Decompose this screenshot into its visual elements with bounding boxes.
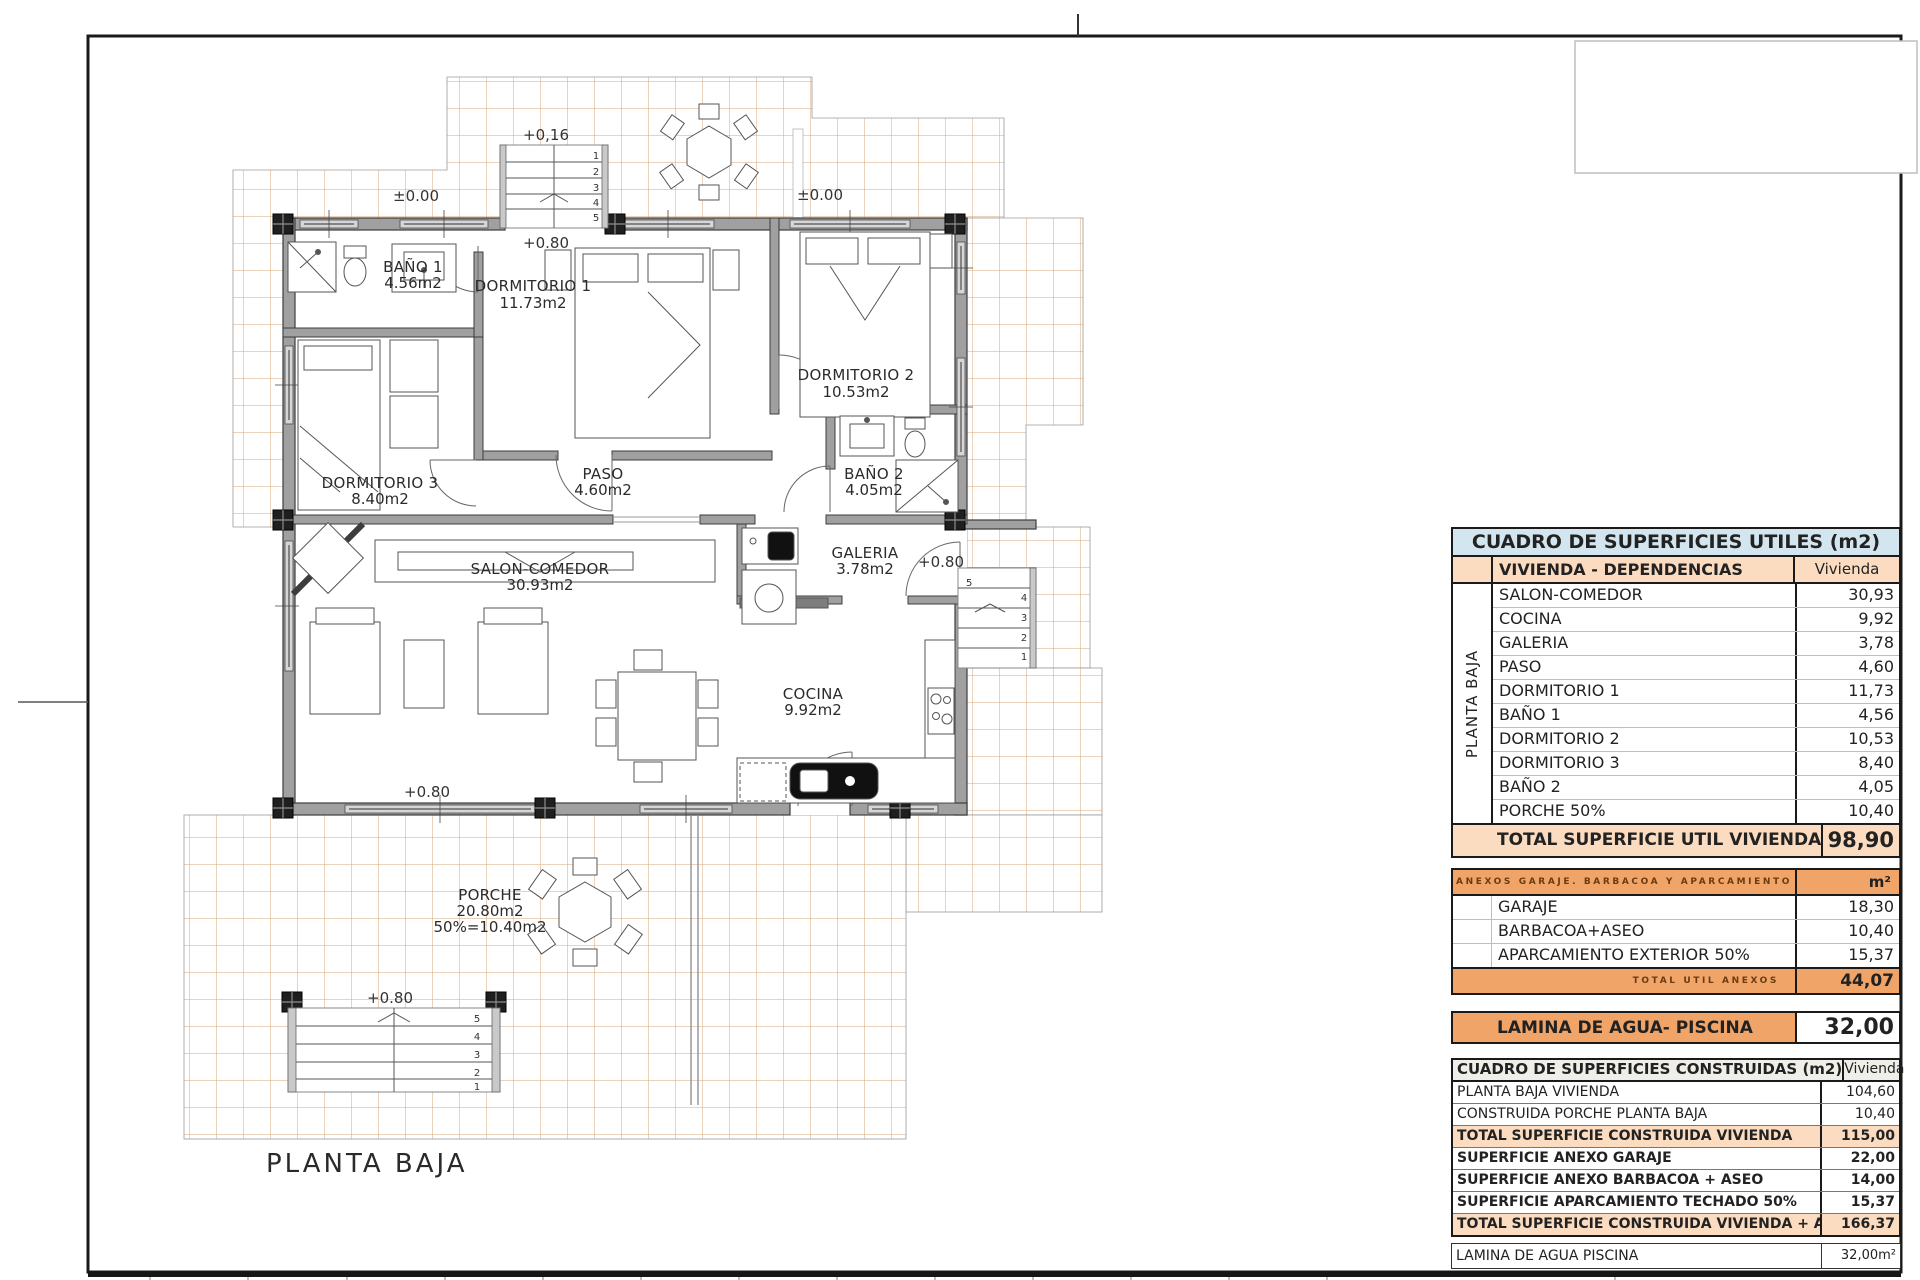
svg-text:3: 3 xyxy=(474,1050,480,1061)
table-row: BAÑO 14,56 xyxy=(1493,704,1899,728)
svg-text:9.92m2: 9.92m2 xyxy=(784,701,842,719)
svg-text:4.60m2: 4.60m2 xyxy=(574,481,632,499)
utiles-value-col-header: Vivienda xyxy=(1793,557,1899,582)
table-row: TOTAL SUPERFICIE CONSTRUIDA VIVIENDA115,… xyxy=(1453,1126,1899,1148)
table-row: GARAJE18,30 xyxy=(1453,896,1899,920)
svg-text:1: 1 xyxy=(1021,652,1027,663)
construidas-value-col-header: Vivienda xyxy=(1842,1060,1904,1080)
level-porch-stairs: +0.80 xyxy=(367,989,413,1007)
table-row: DORMITORIO 111,73 xyxy=(1493,680,1899,704)
table-row: PLANTA BAJA VIVIENDA104,60 xyxy=(1453,1082,1899,1104)
utiles-group-strip: PLANTA BAJA xyxy=(1453,584,1493,823)
piscina-util-bar: LAMINA DE AGUA- PISCINA 32,00 xyxy=(1451,1011,1901,1044)
construidas-title: CUADRO DE SUPERFICIES CONSTRUIDAS (m2) xyxy=(1453,1060,1842,1080)
table-row: DORMITORIO 38,40 xyxy=(1493,752,1899,776)
utiles-total-row: TOTAL SUPERFICIE UTIL VIVIENDA 98,90 xyxy=(1453,823,1899,856)
table-row: SUPERFICIE ANEXO GARAJE22,00 xyxy=(1453,1148,1899,1170)
svg-text:3: 3 xyxy=(1021,613,1027,624)
svg-text:4: 4 xyxy=(593,198,599,209)
level-galeria: +0.80 xyxy=(918,553,964,571)
table-row: SALON-COMEDOR30,93 xyxy=(1493,584,1899,608)
table-row: BARBACOA+ASEO10,40 xyxy=(1453,920,1899,944)
table-row: SUPERFICIE ANEXO BARBACOA + ASEO14,00 xyxy=(1453,1170,1899,1192)
svg-text:5: 5 xyxy=(474,1014,480,1025)
svg-text:3.78m2: 3.78m2 xyxy=(836,560,894,578)
bottom-cropped-strip xyxy=(88,1271,1901,1277)
anexos-table: ANEXOS GARAJE. BARBACOA Y APARCAMIENTO m… xyxy=(1451,868,1901,995)
svg-text:2: 2 xyxy=(593,167,599,178)
table-row: PORCHE 50%10,40 xyxy=(1493,800,1899,823)
svg-text:5: 5 xyxy=(593,213,599,224)
svg-text:5: 5 xyxy=(966,578,972,589)
surfaces-utiles-table: CUADRO DE SUPERFICIES UTILES (m2) VIVIEN… xyxy=(1451,527,1901,858)
room-dormitorio2-label: DORMITORIO 2 xyxy=(798,366,915,384)
table-row: DORMITORIO 210,53 xyxy=(1493,728,1899,752)
table-row: BAÑO 24,05 xyxy=(1493,776,1899,800)
anexos-value-col-header: m² xyxy=(1795,870,1899,894)
table-row: APARCAMIENTO EXTERIOR 50%15,37 xyxy=(1453,944,1899,967)
room-dormitorio1-label: DORMITORIO 1 xyxy=(475,277,592,295)
anexos-total-row: TOTAL UTIL ANEXOS 44,07 xyxy=(1453,967,1899,993)
svg-text:1: 1 xyxy=(593,151,599,162)
plan-sheet: { "plan": { "title": "PLANTA BAJA", "roo… xyxy=(0,0,1920,1280)
surfaces-construidas-table: CUADRO DE SUPERFICIES CONSTRUIDAS (m2) V… xyxy=(1451,1058,1901,1237)
utiles-col-header: VIVIENDA - DEPENDENCIAS xyxy=(1493,557,1793,582)
utiles-title: CUADRO DE SUPERFICIES UTILES (m2) xyxy=(1453,529,1899,557)
stairs-bottom: 5 4 3 2 1 xyxy=(288,1008,500,1093)
table-row: GALERIA3,78 xyxy=(1493,632,1899,656)
svg-text:2: 2 xyxy=(474,1068,480,1079)
table-row: SUPERFICIE APARCAMIENTO TECHADO 50%15,37 xyxy=(1453,1192,1899,1214)
svg-text:3: 3 xyxy=(593,183,599,194)
level-salon: +0.80 xyxy=(404,783,450,801)
level-entry-door: +0.80 xyxy=(523,234,569,252)
level-zero-right: ±0.00 xyxy=(797,186,843,204)
svg-text:4: 4 xyxy=(474,1032,480,1043)
svg-text:10.53m2: 10.53m2 xyxy=(822,383,889,401)
anexos-title: ANEXOS GARAJE. BARBACOA Y APARCAMIENTO xyxy=(1453,870,1795,894)
table-row: COCINA9,92 xyxy=(1493,608,1899,632)
level-entry-top: +0,16 xyxy=(523,126,569,144)
table-row: TOTAL SUPERFICIE CONSTRUIDA VIVIENDA + A… xyxy=(1453,1214,1899,1235)
table-row: PASO4,60 xyxy=(1493,656,1899,680)
plan-title: PLANTA BAJA xyxy=(266,1149,468,1179)
svg-text:50%=10.40m2: 50%=10.40m2 xyxy=(433,918,546,936)
svg-text:8.40m2: 8.40m2 xyxy=(351,490,409,508)
stairs-right: 5 4 3 2 1 xyxy=(958,568,1036,668)
level-zero-left: ±0.00 xyxy=(393,187,439,205)
piscina-construida-bar: LAMINA DE AGUA PISCINA 32,00m² xyxy=(1451,1243,1901,1269)
svg-text:4.05m2: 4.05m2 xyxy=(845,481,903,499)
svg-text:2: 2 xyxy=(1021,633,1027,644)
table-row: CONSTRUIDA PORCHE PLANTA BAJA10,40 xyxy=(1453,1104,1899,1126)
svg-text:1: 1 xyxy=(474,1082,480,1093)
stairs-top: 1 2 3 4 5 xyxy=(500,145,608,228)
svg-text:30.93m2: 30.93m2 xyxy=(506,576,573,594)
title-block-empty xyxy=(1575,41,1917,173)
svg-text:4.56m2: 4.56m2 xyxy=(384,274,442,292)
svg-text:4: 4 xyxy=(1021,593,1027,604)
utiles-corner-cell xyxy=(1453,557,1493,582)
svg-text:11.73m2: 11.73m2 xyxy=(499,294,566,312)
